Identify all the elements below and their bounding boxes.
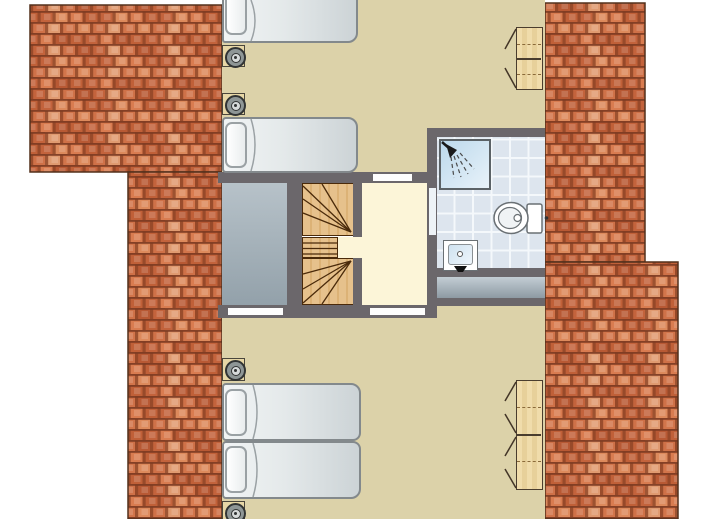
pillow-north-1: [225, 0, 247, 35]
pillow-south-1: [225, 389, 247, 436]
wardrobe-shelf: [517, 407, 541, 408]
wardrobe-shelf: [517, 74, 541, 75]
wardrobe-divider: [517, 434, 541, 436]
stair-mid-landing: [338, 237, 362, 258]
door-opening-south-left: [228, 308, 283, 315]
stair-winder-bottom: [302, 258, 355, 305]
wall-bathroom-top: [427, 128, 545, 137]
flat-roof-band: [437, 277, 545, 298]
nightstand-north-1: [222, 45, 245, 67]
floor-plan: [0, 0, 713, 519]
wall-below-band: [427, 298, 545, 306]
roof-left-upper: [30, 5, 222, 172]
stair-straight-treads: [302, 237, 338, 258]
washbasin: [443, 240, 478, 271]
pillow-south-2: [225, 446, 247, 493]
lamp-icon: [225, 503, 246, 519]
wardrobe-south: [516, 380, 543, 490]
roof-right-lower: [545, 262, 678, 519]
nightstand-north-2: [222, 93, 245, 115]
washbasin-drain: [457, 251, 463, 257]
bathroom-door-opening: [429, 188, 436, 235]
lamp-icon: [225, 360, 246, 381]
roof-left-lower: [128, 172, 222, 519]
shower: [439, 139, 491, 190]
wall-stair-stub-top: [353, 183, 362, 237]
stair-winder-top: [302, 183, 355, 236]
nightstand-south-1: [222, 358, 245, 381]
wardrobe-divider: [517, 58, 541, 60]
wardrobe-shelf: [517, 461, 541, 462]
wardrobe-shelf: [517, 44, 541, 45]
door-opening-south-right: [370, 308, 425, 315]
door-opening-north: [373, 174, 412, 181]
wall-stair-left: [287, 183, 302, 305]
void-grey-zone: [222, 183, 287, 305]
wardrobe-north: [516, 27, 543, 90]
pillow-north-2: [225, 122, 247, 168]
landing-floor: [362, 183, 427, 305]
roof-right-upper: [545, 3, 645, 262]
lamp-icon: [225, 95, 246, 116]
nightstand-south-2: [222, 501, 245, 519]
lamp-icon: [225, 47, 246, 68]
wall-stair-stub-bottom: [353, 258, 362, 305]
